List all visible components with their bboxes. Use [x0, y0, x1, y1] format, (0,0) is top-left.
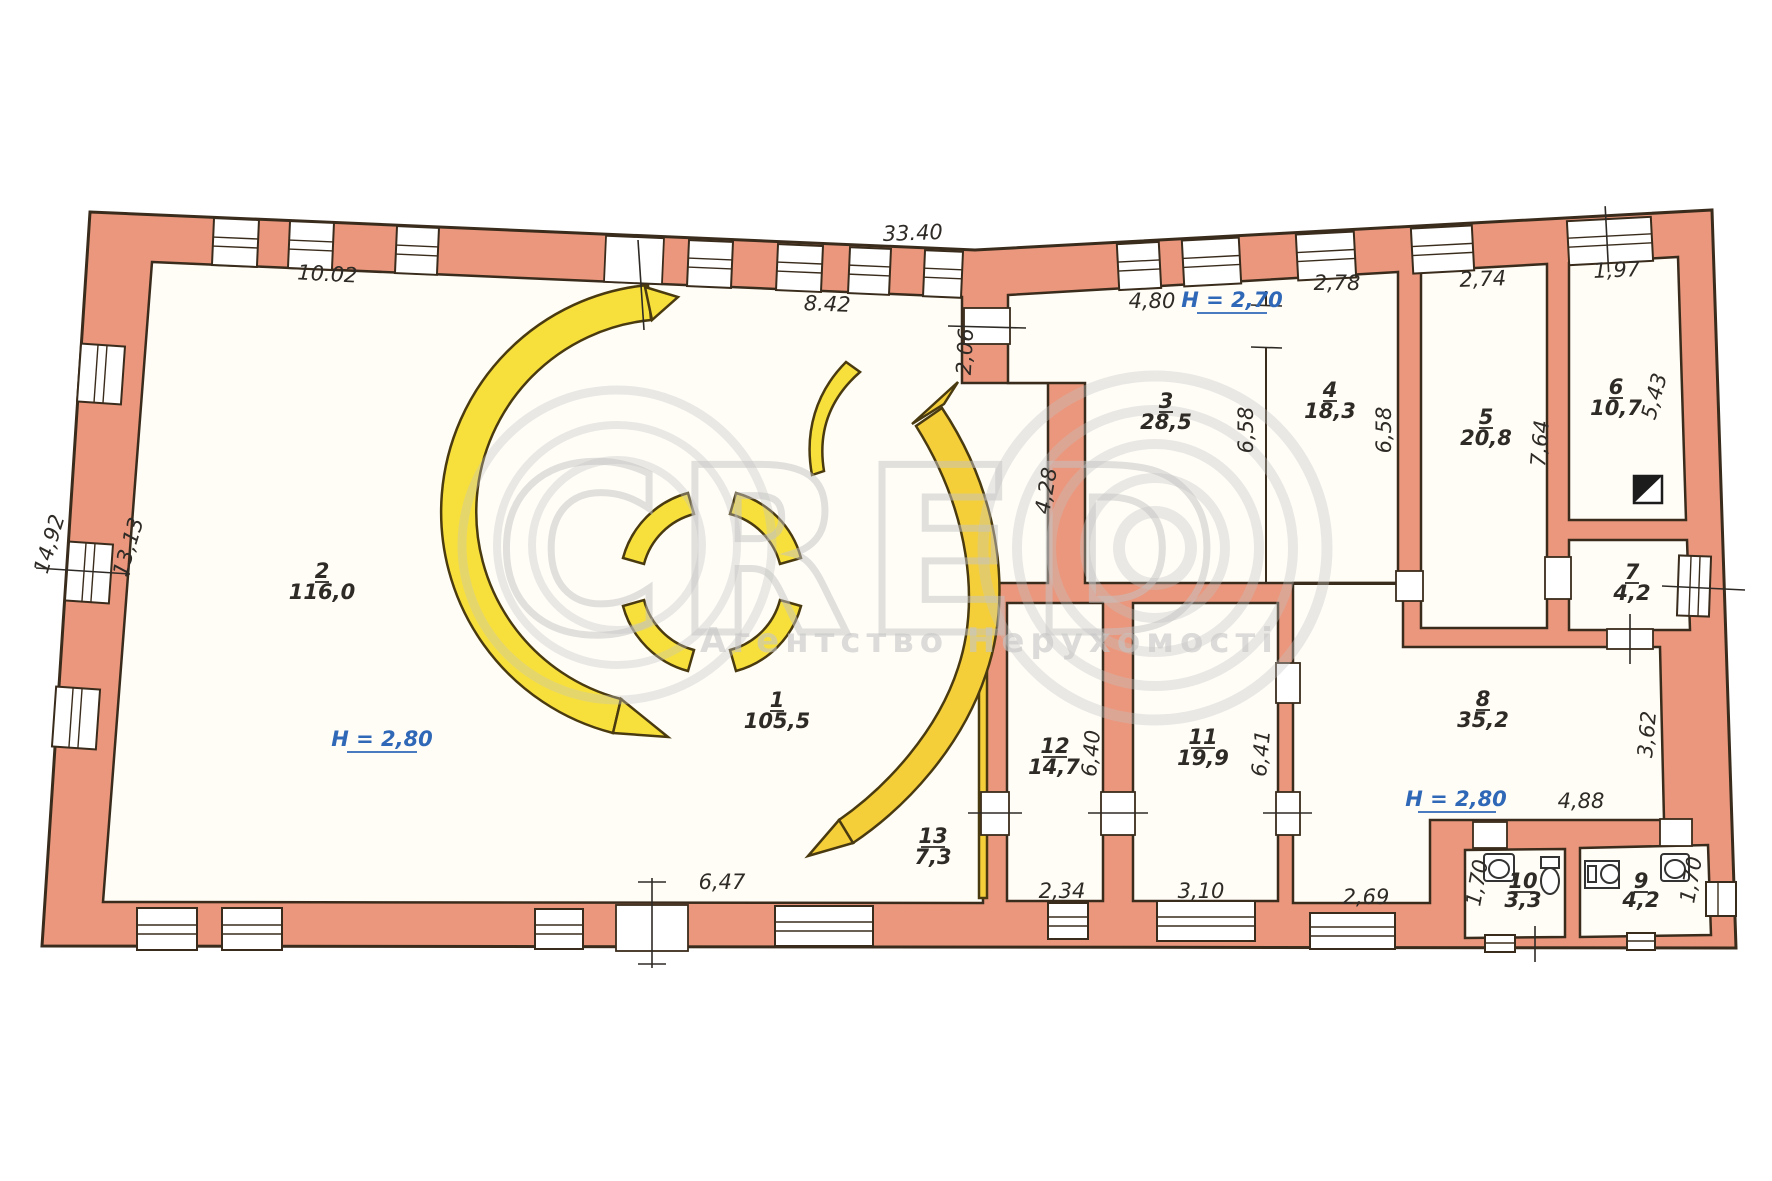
watermark-subtitle: Агентство Нерухомості: [700, 621, 1279, 661]
window: [1182, 238, 1241, 287]
boiler-icon: [1585, 861, 1619, 888]
dim-room3-height: 6,58: [1234, 407, 1258, 454]
window: [222, 908, 282, 950]
dim-left-outer: 14,92: [29, 512, 70, 577]
dim-top-total: 33.40: [882, 220, 943, 246]
window: [1117, 242, 1161, 290]
window: [1310, 913, 1395, 949]
floor-plan-page: CRED Агентство Нерухомості 1 105,5 2 116…: [0, 0, 1772, 1181]
dim-room2-top: 10.02: [297, 260, 358, 287]
window: [775, 906, 873, 946]
height-room2: H = 2,80: [331, 727, 433, 751]
window: [687, 240, 733, 288]
door-opening: [1396, 571, 1423, 601]
window: [395, 226, 439, 275]
window: [1706, 882, 1736, 916]
room-7-area: 4,2: [1612, 581, 1650, 605]
dim-room1-top: 8.42: [803, 291, 851, 317]
dim-room4-height: 6,58: [1372, 407, 1396, 454]
room-6-area: 10,7: [1590, 396, 1642, 420]
dim-room3-top: 4,80: [1129, 289, 1176, 313]
dim-hall-width: 2,69: [1343, 885, 1390, 909]
dim-wall-206: 2,06: [952, 328, 978, 376]
room-4-area: 18,3: [1304, 399, 1356, 423]
window: [923, 250, 963, 298]
room-11-area: 19,9: [1177, 746, 1229, 770]
window: [1677, 555, 1711, 616]
dim-room8-height: 3,62: [1633, 710, 1661, 759]
room-10-area: 3,3: [1504, 888, 1541, 912]
window: [137, 908, 197, 950]
window: [1157, 901, 1255, 941]
window: [77, 344, 125, 405]
dim-room5-top: 2,74: [1459, 266, 1507, 292]
floor-plan-drawing: CRED Агентство Нерухомості 1 105,5 2 116…: [0, 0, 1772, 1181]
door-opening: [1473, 822, 1507, 848]
window: [1485, 935, 1515, 952]
room-label: 10 3,3: [1504, 869, 1541, 912]
dim-room5-height: 7,64: [1526, 419, 1554, 468]
room-3-area: 28,5: [1140, 410, 1192, 434]
window: [848, 247, 891, 295]
height-room3: H = 2,70: [1181, 288, 1283, 312]
window: [535, 909, 583, 949]
window: [1411, 225, 1474, 273]
toilet-icon: [1541, 857, 1559, 894]
room-2-area: 116,0: [289, 580, 355, 604]
window: [1048, 903, 1088, 939]
dim-room1-bottom: 6,47: [699, 870, 746, 894]
dim-room12-width: 2,34: [1039, 879, 1086, 903]
stairs-symbol-icon: [1634, 476, 1662, 503]
height-room8: H = 2,80: [1405, 787, 1507, 811]
dim-room11-width: 3,10: [1178, 879, 1225, 903]
room-1-area: 105,5: [744, 709, 810, 733]
room-9-area: 4,2: [1621, 888, 1659, 912]
window: [776, 244, 823, 292]
window: [212, 218, 259, 267]
watermark-logo: CRED Агентство Нерухомості: [462, 376, 1327, 720]
room-label: 13 7,3: [914, 824, 951, 869]
door-opening: [1660, 819, 1692, 846]
window: [1627, 933, 1655, 950]
door-opening: [1545, 557, 1571, 599]
room-13-area: 7,3: [914, 845, 951, 869]
window: [52, 687, 100, 750]
dim-room6-top: 1,97: [1593, 257, 1641, 283]
dim-room12-height: 6,40: [1077, 729, 1105, 778]
dim-room8-width: 4,88: [1558, 789, 1605, 813]
dim-room11-height: 6,41: [1247, 729, 1275, 778]
dim-room4-top: 2,78: [1314, 271, 1361, 295]
room-12-area: 14,7: [1028, 755, 1080, 779]
room-8-area: 35,2: [1457, 708, 1509, 732]
room-5-area: 20,8: [1460, 426, 1512, 450]
